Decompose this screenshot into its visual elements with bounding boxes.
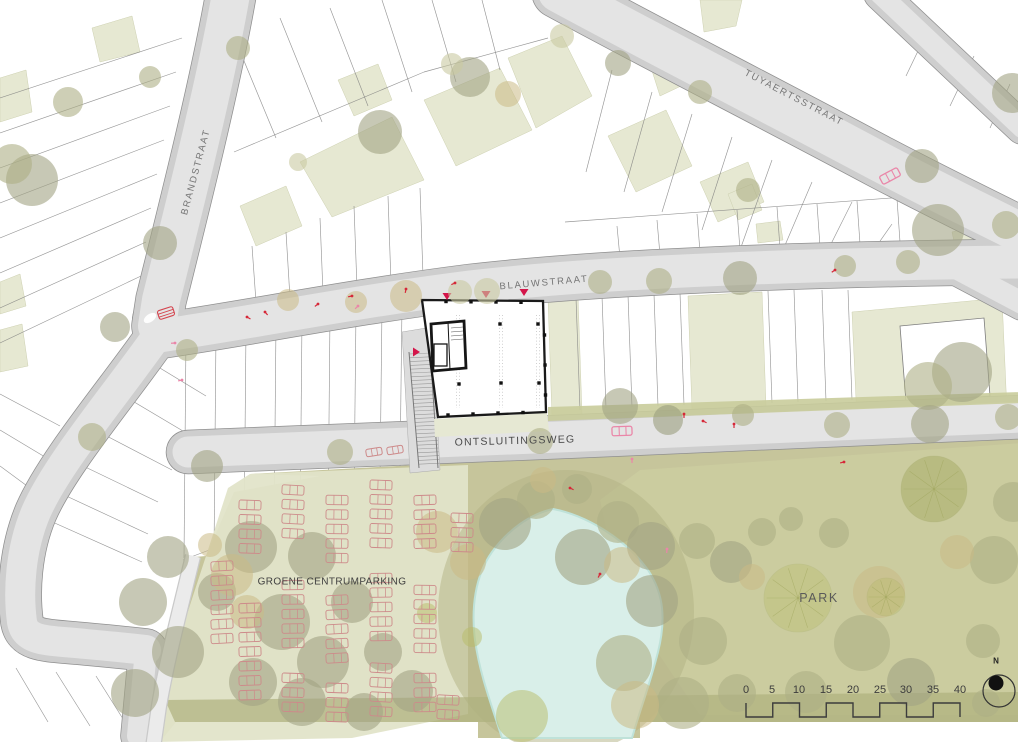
site-plan: BRANDSTRAAT TUYAERTSSTRAAT BLAUWSTRAAT O… — [0, 0, 1018, 753]
scale-tick-10: 10 — [793, 684, 805, 696]
area-label-park: PARK — [799, 591, 839, 605]
scale-tick-5: 5 — [769, 684, 775, 696]
scale-tick-25: 25 — [874, 684, 886, 696]
scale-tick-0: 0 — [743, 684, 749, 696]
site-plan-map — [0, 0, 1018, 753]
scale-tick-20: 20 — [847, 684, 859, 696]
scale-tick-40: 40 — [954, 684, 966, 696]
north-label: N — [993, 657, 999, 666]
scale-tick-35: 35 — [927, 684, 939, 696]
scale-tick-30: 30 — [900, 684, 912, 696]
area-label-groene-centrumparking: GROENE CENTRUMPARKING — [258, 577, 407, 588]
scale-tick-15: 15 — [820, 684, 832, 696]
